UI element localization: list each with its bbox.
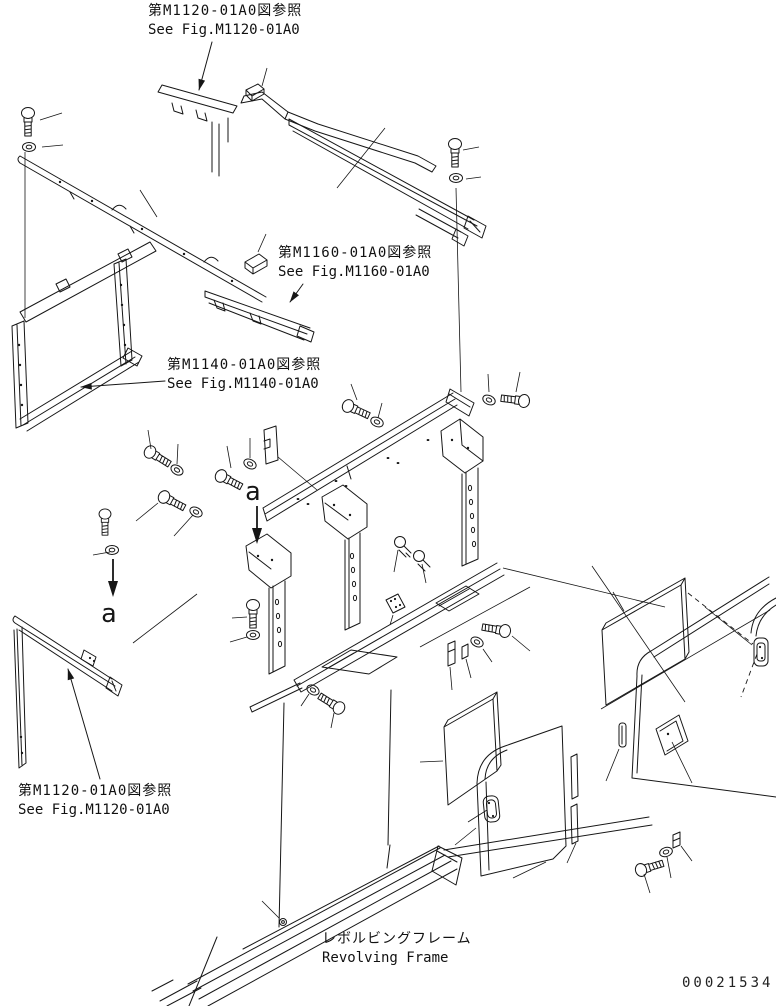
bolt [340,398,371,422]
plug-screw [414,551,431,572]
washer [242,457,258,471]
bolt [481,621,511,639]
panel-back-right [602,578,689,705]
exploded-view-drawing: a a [0,0,776,1006]
fig-ref-frame-jp: 第M1140-01A0図参照 [167,356,321,375]
fig-ref-label-mid: 第M1160-01A0図参照 See Fig.M1160-01A0 [278,244,432,282]
revolving-frame-label-jp: レボルビングフレーム [322,930,472,949]
bolt [99,509,111,535]
bottom-left-rail [13,616,122,768]
washer [106,546,119,555]
revolving-frame-label: レボルビングフレーム Revolving Frame [322,930,472,968]
bolt [22,108,35,137]
clip [462,644,468,659]
section-marker-upper: a [245,477,261,507]
bolt [142,444,173,470]
washer [23,143,36,152]
washer [450,174,463,183]
revolving-frame-label-en: Revolving Frame [322,949,472,968]
washer [658,846,673,858]
side-rail [18,156,266,302]
washer [247,631,260,640]
bolt [316,690,347,716]
left-subframe [12,242,156,431]
fig-ref-bottom-left-en: See Fig.M1120-01A0 [18,801,172,820]
washer [369,415,385,429]
section-marker-lower: a [101,599,117,629]
bolt [449,139,462,168]
clip [673,832,680,848]
fig-ref-mid-jp: 第M1160-01A0図参照 [278,244,432,263]
fig-ref-frame-en: See Fig.M1140-01A0 [167,375,321,394]
door-front-right [632,577,776,797]
fig-ref-label-bottom-left: 第M1120-01A0図参照 See Fig.M1120-01A0 [18,782,172,820]
nut [305,683,321,697]
washer [169,463,185,478]
door-behind-corner [751,598,776,636]
bolt [247,600,260,629]
clip [448,641,455,666]
fig-ref-mid-en: See Fig.M1160-01A0 [278,263,432,282]
fig-ref-top-en: See Fig.M1120-01A0 [148,21,302,40]
bolt [500,392,530,408]
bolt [634,857,665,878]
fig-ref-label-top: 第M1120-01A0図参照 See Fig.M1120-01A0 [148,2,302,40]
bolt [156,489,187,514]
latch-recess [656,715,688,755]
latch-plate [754,638,768,666]
washer [481,393,497,407]
bolt [213,468,244,493]
parts-diagram-page: a a 第M1120-01A0図参照 See Fig.M1120-01A0 第M… [0,0,776,1006]
main-frame-assembly [246,389,504,712]
door-front-left [477,726,566,876]
washer [188,505,204,519]
fig-ref-label-frame: 第M1140-01A0図参照 See Fig.M1140-01A0 [167,356,321,394]
seal-strip-upper [571,754,578,799]
fig-ref-bottom-left-jp: 第M1120-01A0図参照 [18,782,172,801]
nut [469,635,485,649]
fig-ref-top-jp: 第M1120-01A0図参照 [148,2,302,21]
top-bracket-assembly [158,84,436,176]
fasteners [22,108,681,878]
panel-back-left [444,692,501,805]
drawing-number: 00021534 [682,975,773,991]
